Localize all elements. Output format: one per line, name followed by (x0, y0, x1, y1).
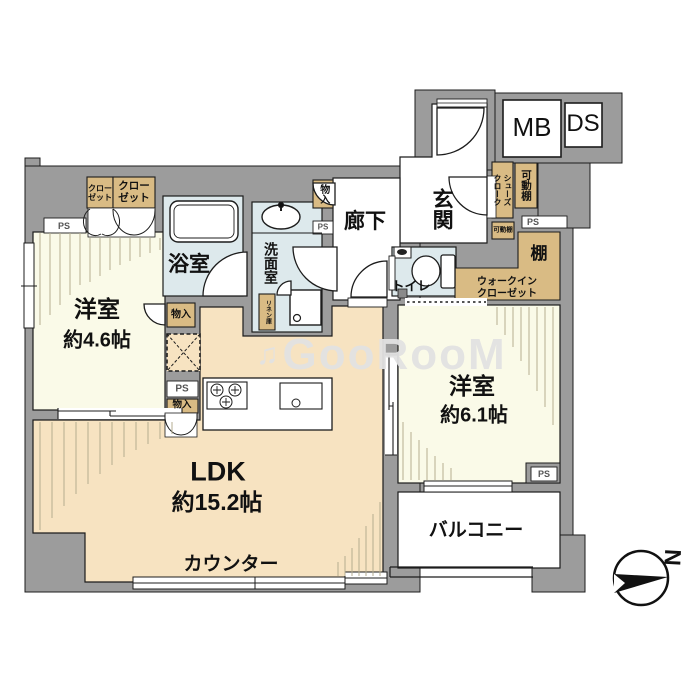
washroom-label: 洗面室 (263, 242, 279, 284)
hallway-label: 廊下 (344, 210, 386, 234)
ps-label-mid: PS (527, 217, 539, 227)
storage-kitchen-label: 物入 (172, 401, 191, 412)
ds-label: DS (566, 110, 599, 138)
bathtub (170, 201, 238, 242)
storage-hall-label: 物入 (317, 184, 329, 204)
toilet-label: トイレ (391, 280, 430, 295)
fridge-space (167, 334, 200, 371)
mb-label: MB (513, 113, 552, 143)
shelf-label: 棚 (531, 244, 548, 264)
counter-label: カウンター (183, 554, 278, 576)
walk-in-closet-label: ウォークイン クローゼット (477, 277, 537, 300)
north-label: N (658, 548, 686, 566)
bedroom-small-name-label: 洋室 (74, 296, 120, 322)
bedroom-large-size-label: 約6.1帖 (440, 405, 508, 428)
ps-label-kitchen: PS (175, 383, 188, 395)
closet-folding-doors (83, 208, 155, 237)
threshold-ldk-hall (348, 298, 387, 307)
ps-label-left: PS (58, 221, 70, 231)
entrance-label: 玄関 (429, 188, 453, 230)
bathroom-label: 浴室 (168, 253, 210, 277)
faucet-icon (292, 399, 300, 407)
bedroom-large-name-label: 洋室 (449, 373, 495, 399)
ps-label-hall: PS (318, 222, 329, 231)
wic-open-boundary (405, 298, 487, 306)
storage-bedroom-label: 物入 (171, 309, 191, 321)
bedroom-small-size-label: 約4.6帖 (63, 330, 131, 353)
toilet-hand-basin (397, 249, 407, 255)
kitchen-counter (203, 378, 332, 430)
ps-label-bedroom-large: PS (538, 469, 550, 479)
ldk-size-label: 約15.2帖 (172, 489, 263, 515)
balcony-label: バルコニー (429, 520, 524, 542)
washing-machine (290, 290, 321, 325)
shoes-cloak-label: シューズ クローク (492, 174, 512, 206)
floorplan: ♫ GooRooM LDK 約15.2帖 洋室 約4.6帖 洋室 約6.1帖 バ… (0, 0, 700, 700)
closet-large-label: クロー ゼット (118, 180, 150, 204)
movable-shelf-label: 可動棚 (520, 169, 532, 201)
movable-shelf-small-label: 可動棚 (493, 226, 513, 233)
storage-kitchen-doors (165, 413, 197, 437)
kitchen-sink (280, 383, 322, 409)
closet-small-label: クロー ゼット (88, 184, 112, 202)
linen-label: リネン庫 (264, 300, 271, 324)
music-note-icon: ♫ (256, 338, 281, 372)
slider-bedroom-small (58, 408, 182, 419)
ldk-name-label: LDK (190, 456, 246, 487)
